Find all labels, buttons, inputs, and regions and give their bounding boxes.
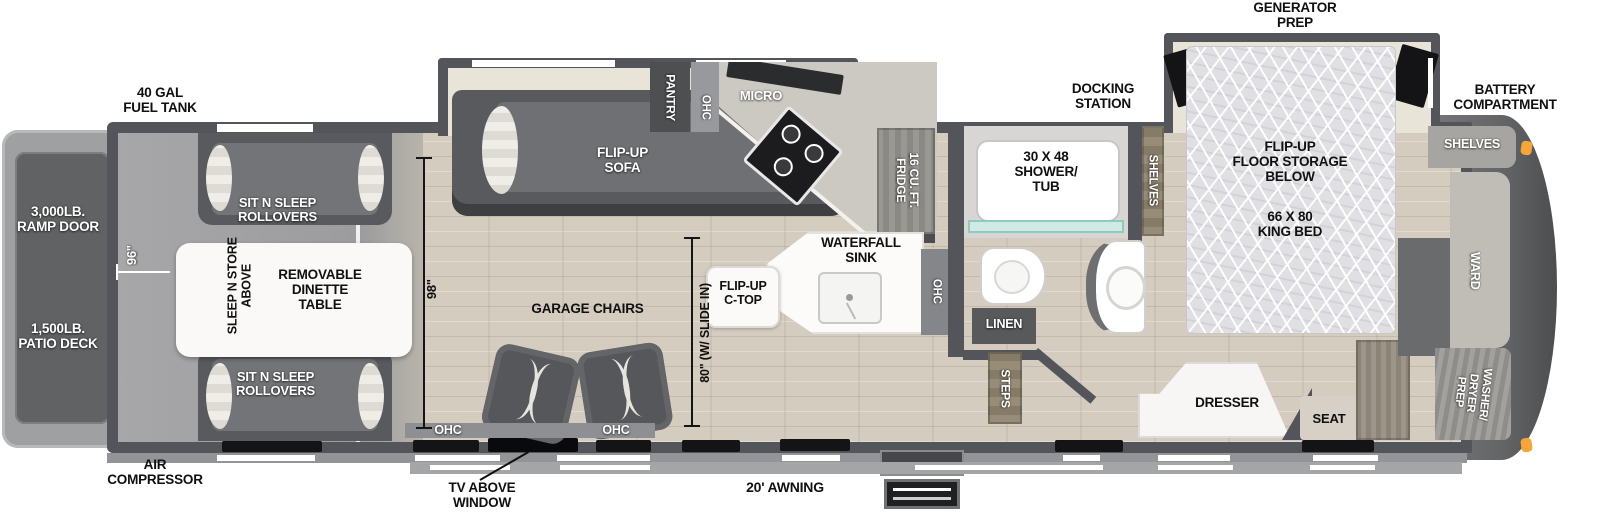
window-slot (557, 455, 650, 461)
micro-label: MICRO (719, 89, 803, 103)
step-line (893, 488, 951, 491)
awning-rail (410, 462, 1462, 474)
floorplan: 3,000LB. RAMP DOOR 1,500LB. PATIO DECK F… (0, 0, 1600, 518)
window-bar (1055, 440, 1123, 452)
ramp-door-panel (15, 152, 110, 424)
window-bar (780, 439, 850, 451)
ramp-door-label: 3,000LB. RAMP DOOR (4, 205, 112, 235)
flip-up-sofa-label: FLIP-UP SOFA (555, 146, 690, 176)
awning-slot (1310, 465, 1375, 470)
waterfall-sink-label: WATERFALL SINK (796, 236, 926, 266)
awning-slot (1158, 465, 1233, 470)
dimension-80-label: 80" (W/ SLIDE IN) (699, 255, 713, 411)
sofa-cushion (358, 145, 384, 211)
marker-light-top-icon (1520, 140, 1533, 155)
air-compressor-label: AIR COMPRESSOR (80, 458, 230, 488)
window-slot (1158, 455, 1230, 461)
dimension-98-tick (416, 427, 432, 429)
sit-n-sleep-bottom-label: SIT N SLEEP ROLLOVERS (208, 370, 343, 399)
awning-label: 20' AWNING (715, 480, 855, 495)
window-slot (472, 60, 615, 67)
shower-glass (968, 220, 1124, 233)
toilet-bowl-icon (994, 260, 1030, 294)
window-slot (1313, 455, 1378, 461)
dresser-label: DRESSER (1172, 396, 1282, 411)
burner-icon (801, 140, 828, 167)
bath-wall (1128, 122, 1142, 242)
shelves-inner-label: SHELVES (1146, 145, 1159, 215)
sink-faucet-icon (846, 303, 856, 320)
step-line (893, 497, 951, 500)
king-bed (1186, 46, 1396, 334)
ohc-island-label: OHC (930, 266, 943, 316)
ohc-kitchen-label: OHC (699, 82, 712, 132)
flip-up-ctop-label: FLIP-UP C-TOP (706, 280, 780, 308)
window-bar (222, 441, 322, 452)
dimension-80-tick (684, 237, 700, 239)
burner-icon (770, 153, 797, 180)
floor-storage-label: FLIP-UP FLOOR STORAGE BELOW (1205, 140, 1375, 185)
ward-label: WARD (1467, 241, 1481, 301)
bath-wall (948, 122, 964, 357)
king-bed-label: 66 X 80 KING BED (1215, 210, 1365, 240)
window-slot (217, 455, 315, 461)
fridge-label: 16 CU. FT. FRIDGE (894, 120, 920, 240)
entry-door-steps (884, 479, 960, 509)
shower-tub-label: 30 X 48 SHOWER/ TUB (974, 150, 1118, 195)
battery-compartment-label: BATTERY COMPARTMENT (1425, 83, 1585, 113)
seat-label: SEAT (1296, 412, 1362, 426)
vanity-basin-icon (1106, 266, 1146, 310)
awning-slot (560, 465, 650, 470)
window-slot (1063, 455, 1100, 461)
window-slot (782, 455, 840, 461)
marker-light-bottom-icon (1520, 437, 1533, 452)
patio-deck-label: 1,500LB. PATIO DECK (4, 322, 112, 352)
dimension-96-label: 96" (125, 227, 139, 283)
ohc-mid-label: OHC (590, 424, 642, 438)
steps-label: STEPS (998, 357, 1011, 421)
window-bar (413, 440, 479, 452)
linen-label: LINEN (972, 318, 1036, 332)
pantry-label: PANTRY (663, 58, 676, 138)
tv-above-window-bar (488, 438, 578, 452)
window-slot (415, 455, 500, 461)
window-bar (1302, 440, 1374, 452)
window-slot (217, 124, 313, 132)
dinette-label: REMOVABLE DINETTE TABLE (245, 268, 395, 313)
awning-slot (915, 465, 1103, 470)
dimension-98-label: 98" (425, 259, 439, 319)
sink-drain-icon (846, 294, 853, 301)
wardrobe-dark (1398, 238, 1450, 356)
tv-above-window-label: TV ABOVE WINDOW (412, 481, 552, 511)
vanity-sink (1086, 240, 1146, 334)
island-sink (818, 272, 882, 324)
docking-station-label: DOCKING STATION (1038, 82, 1168, 112)
shelves-front-label: SHELVES (1432, 138, 1512, 152)
burner-icon (778, 121, 805, 148)
window-bar (682, 440, 740, 452)
window-bar (596, 440, 651, 452)
dimension-80-line (691, 238, 693, 426)
sofa-cushion (358, 363, 384, 429)
dimension-98-tick (416, 157, 432, 159)
toilet (980, 247, 1046, 305)
dimension-80-tick (684, 425, 700, 427)
garage-chairs-label: GARAGE CHAIRS (505, 302, 670, 317)
fuel-tank-label: 40 GAL FUEL TANK (85, 86, 235, 116)
generator-prep-label: GENERATOR PREP (1220, 1, 1370, 31)
sofa-cushion (482, 106, 518, 194)
